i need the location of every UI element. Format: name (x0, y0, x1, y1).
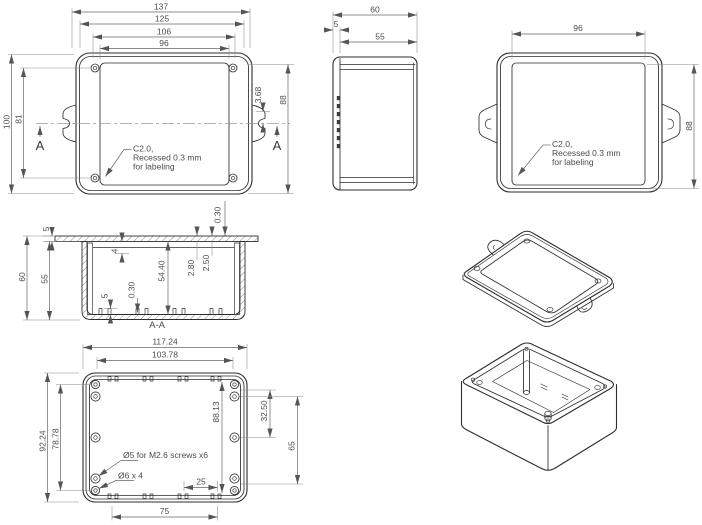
dim-rib-height: 0.30 (127, 281, 137, 298)
dim-slot-offset: 3.68 (253, 86, 263, 103)
section-letter-left: A (36, 138, 45, 153)
dim-panel-height: 88 (278, 95, 288, 105)
dim-section-body-depth: 55 (40, 274, 50, 284)
dim-section-total-depth: 60 (17, 272, 27, 282)
dim-body-width: 125 (155, 14, 169, 24)
note-chamfer-line3: for labeling (133, 162, 175, 172)
section-lid-flange (55, 236, 258, 242)
sheet-background (0, 0, 702, 525)
dim-body-depth: 55 (375, 32, 385, 42)
dim-hole-spacing: 81 (14, 114, 24, 124)
dim-flange-width: 137 (154, 2, 168, 12)
dim-recess-width: 106 (157, 27, 171, 37)
dim-rib-spacing: 75 (160, 506, 170, 516)
dim-back-panel-width: 96 (573, 23, 583, 33)
dim-panel-width: 96 (159, 38, 169, 48)
dim-step-b: 2.50 (201, 254, 211, 271)
dim-step-a: 2.80 (186, 259, 196, 276)
dim-inner-width: 103.78 (152, 350, 178, 360)
dim-lid-depth: 5 (334, 19, 339, 29)
dim-boss-offset: 32.50 (259, 400, 269, 422)
note-corner-holes: Ø6 x 4 (118, 471, 143, 481)
dim-body-height: 100 (2, 115, 12, 129)
dim-recess-depth: 0.30 (213, 206, 223, 223)
note-chamfer-back-line3: for labeling (552, 157, 594, 167)
dim-hole-spacing-v: 78.78 (51, 428, 61, 450)
dim-outer-height: 92.24 (38, 430, 48, 452)
drawing-sheet: 137 125 106 96 100 81 3.68 88 (0, 0, 702, 525)
dim-total-depth: 60 (370, 5, 380, 15)
dim-boss-spacing: 65 (287, 441, 297, 451)
section-letter-right: A (273, 138, 282, 153)
dim-inner-height: 88.13 (211, 401, 221, 423)
dim-rib-offset: 25 (196, 477, 206, 487)
dim-inner-depth: 54.40 (157, 260, 167, 282)
dim-top-rib-depth: 4 (110, 248, 120, 253)
dim-outer-width: 117.24 (152, 337, 178, 347)
section-label: A-A (149, 320, 166, 331)
technical-drawing-canvas: 137 125 106 96 100 81 3.68 88 (0, 0, 702, 525)
note-screw-bosses: Ø5 for M2.6 screws x6 (123, 450, 208, 460)
dim-lid-thickness: 5 (41, 226, 51, 231)
dim-boss-height: 5 (100, 293, 110, 298)
dim-back-panel-height: 88 (684, 121, 694, 131)
